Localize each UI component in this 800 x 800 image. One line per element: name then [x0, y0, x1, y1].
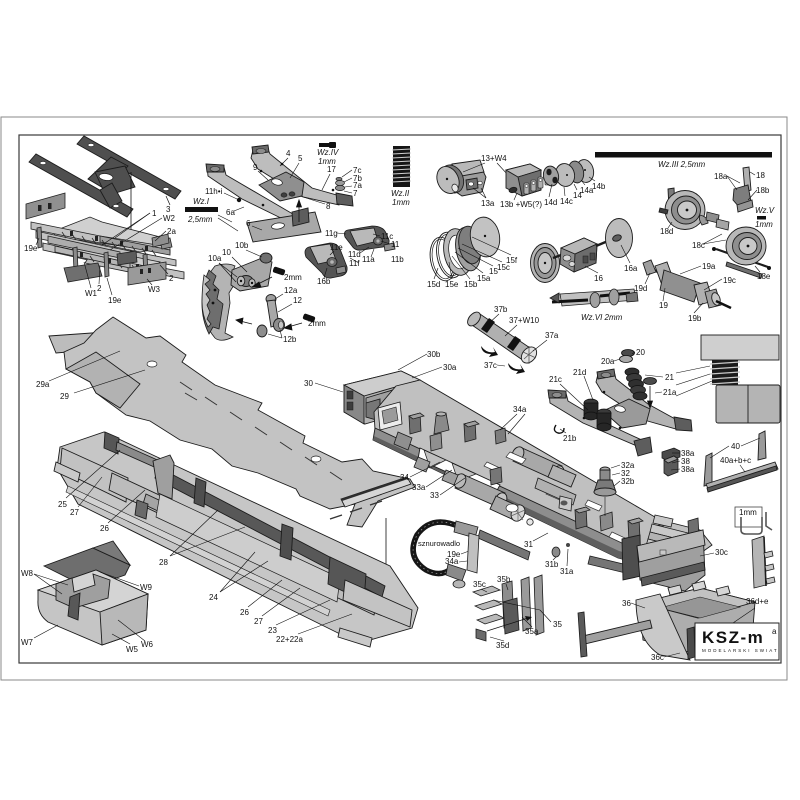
svg-text:22+22a: 22+22a — [276, 635, 303, 644]
svg-text:18b: 18b — [756, 186, 770, 195]
svg-text:26: 26 — [100, 524, 109, 533]
svg-text:1: 1 — [152, 209, 157, 218]
svg-text:12: 12 — [293, 296, 302, 305]
svg-text:11e: 11e — [330, 243, 343, 252]
svg-text:Wz.I: Wz.I — [193, 197, 210, 206]
svg-text:W9: W9 — [140, 583, 153, 592]
svg-text:15e: 15e — [445, 280, 459, 289]
svg-text:W5: W5 — [126, 645, 139, 654]
svg-text:16: 16 — [594, 274, 603, 283]
svg-text:18a: 18a — [714, 172, 728, 181]
svg-text:21: 21 — [665, 373, 674, 382]
svg-text:10b: 10b — [235, 241, 249, 250]
svg-text:Wz.II: Wz.II — [391, 189, 410, 198]
svg-text:14b: 14b — [592, 182, 606, 191]
svg-text:19b: 19b — [688, 314, 702, 323]
svg-text:32b: 32b — [621, 477, 635, 486]
svg-text:35b: 35b — [497, 575, 511, 584]
svg-text:12b: 12b — [283, 335, 297, 344]
svg-text:35d: 35d — [496, 641, 509, 650]
svg-text:3: 3 — [166, 205, 171, 214]
svg-text:12a: 12a — [284, 286, 298, 295]
svg-text:20: 20 — [636, 348, 645, 357]
svg-text:31a: 31a — [560, 567, 574, 576]
svg-text:18c: 18c — [692, 241, 705, 250]
svg-text:14c: 14c — [560, 197, 573, 206]
svg-text:18d: 18d — [660, 227, 673, 236]
svg-text:19e: 19e — [108, 296, 122, 305]
svg-text:MODELARSKI SWIAT: MODELARSKI SWIAT — [702, 648, 779, 653]
svg-text:7: 7 — [353, 189, 358, 198]
svg-text:21a: 21a — [663, 388, 677, 397]
svg-text:19e: 19e — [24, 244, 38, 253]
svg-text:21c: 21c — [549, 375, 562, 384]
svg-text:9: 9 — [253, 163, 258, 172]
svg-text:Wz.VI 2mm: Wz.VI 2mm — [581, 313, 623, 322]
svg-text:W2: W2 — [163, 214, 176, 223]
svg-text:10a: 10a — [208, 254, 222, 263]
svg-text:36c: 36c — [651, 653, 664, 662]
svg-text:11a: 11a — [362, 255, 375, 264]
svg-text:W3: W3 — [148, 285, 161, 294]
svg-text:35: 35 — [553, 620, 562, 629]
svg-text:40a+b+c: 40a+b+c — [720, 456, 751, 465]
svg-text:21d: 21d — [573, 368, 586, 377]
svg-text:1mm: 1mm — [392, 198, 410, 207]
svg-text:sznurowadlo: sznurowadlo — [418, 539, 460, 548]
svg-text:23: 23 — [268, 626, 277, 635]
svg-text:36: 36 — [622, 599, 631, 608]
svg-text:6: 6 — [246, 219, 251, 228]
svg-text:5: 5 — [298, 154, 303, 163]
svg-text:2mm: 2mm — [308, 319, 326, 328]
svg-text:19d: 19d — [634, 284, 647, 293]
svg-text:30: 30 — [304, 379, 313, 388]
svg-text:24: 24 — [209, 593, 218, 602]
svg-text:30b: 30b — [427, 350, 441, 359]
svg-text:2: 2 — [97, 284, 102, 293]
svg-text:36d+e: 36d+e — [746, 597, 769, 606]
svg-text:30a: 30a — [443, 363, 457, 372]
svg-text:KSZ-m: KSZ-m — [702, 628, 764, 647]
svg-text:8: 8 — [326, 202, 331, 211]
svg-text:19a: 19a — [702, 262, 716, 271]
svg-text:Wz.IV: Wz.IV — [317, 148, 339, 157]
svg-text:20a: 20a — [601, 357, 615, 366]
svg-text:1mm: 1mm — [739, 508, 757, 517]
svg-text:34a: 34a — [445, 557, 459, 566]
svg-text:31b: 31b — [545, 560, 559, 569]
svg-text:2: 2 — [169, 274, 174, 283]
svg-text:35c: 35c — [473, 580, 486, 589]
svg-text:35a: 35a — [525, 627, 539, 636]
svg-text:18: 18 — [756, 171, 765, 180]
svg-text:16a: 16a — [624, 264, 638, 273]
svg-text:15d: 15d — [427, 280, 440, 289]
svg-text:27: 27 — [254, 617, 263, 626]
svg-text:W8: W8 — [21, 569, 34, 578]
svg-text:6a: 6a — [226, 208, 235, 217]
svg-text:37c: 37c — [484, 361, 497, 370]
svg-text:21b: 21b — [563, 434, 577, 443]
svg-text:17: 17 — [327, 165, 336, 174]
svg-text:27: 27 — [70, 508, 79, 517]
svg-text:2mm: 2mm — [284, 273, 302, 282]
svg-text:W7: W7 — [21, 638, 34, 647]
svg-text:33: 33 — [430, 491, 439, 500]
svg-text:19: 19 — [659, 301, 668, 310]
svg-text:W1: W1 — [85, 289, 98, 298]
svg-text:37b: 37b — [494, 305, 508, 314]
svg-text:30c: 30c — [715, 548, 728, 557]
svg-text:W6: W6 — [141, 640, 154, 649]
svg-text:34: 34 — [400, 473, 409, 482]
svg-text:15f: 15f — [506, 256, 518, 265]
svg-text:40: 40 — [731, 442, 740, 451]
svg-text:18e: 18e — [757, 272, 771, 281]
svg-text:29: 29 — [60, 392, 69, 401]
svg-text:1mm: 1mm — [755, 220, 773, 229]
svg-text:Wz.V: Wz.V — [755, 206, 775, 215]
svg-text:34a: 34a — [513, 405, 527, 414]
svg-text:26: 26 — [240, 608, 249, 617]
svg-text:15b: 15b — [464, 280, 478, 289]
svg-text:11: 11 — [391, 240, 400, 249]
svg-text:13a: 13a — [481, 199, 495, 208]
svg-text:13+W4: 13+W4 — [481, 154, 507, 163]
svg-text:Wz.III 2,5mm: Wz.III 2,5mm — [658, 160, 705, 169]
svg-text:16b: 16b — [317, 277, 331, 286]
svg-text:1mm: 1mm — [318, 157, 336, 166]
svg-text:a: a — [772, 627, 777, 636]
svg-text:33a: 33a — [412, 483, 426, 492]
svg-text:13b +W5(?): 13b +W5(?) — [500, 200, 542, 209]
svg-text:37a: 37a — [545, 331, 559, 340]
svg-text:28: 28 — [159, 558, 168, 567]
svg-text:2a: 2a — [167, 227, 176, 236]
svg-text:14d: 14d — [544, 198, 557, 207]
svg-text:25: 25 — [58, 500, 67, 509]
svg-text:4: 4 — [286, 149, 291, 158]
svg-text:11d: 11d — [348, 250, 361, 259]
svg-text:31: 31 — [524, 540, 533, 549]
svg-text:19c: 19c — [723, 276, 736, 285]
svg-text:29a: 29a — [36, 380, 50, 389]
svg-text:10: 10 — [222, 248, 231, 257]
svg-text:38a: 38a — [681, 465, 695, 474]
svg-text:11h•i: 11h•i — [205, 187, 223, 196]
svg-text:37+W10: 37+W10 — [509, 316, 540, 325]
svg-text:2,5mm: 2,5mm — [187, 215, 213, 224]
svg-text:11b: 11b — [391, 255, 404, 264]
svg-text:11g: 11g — [325, 229, 338, 238]
